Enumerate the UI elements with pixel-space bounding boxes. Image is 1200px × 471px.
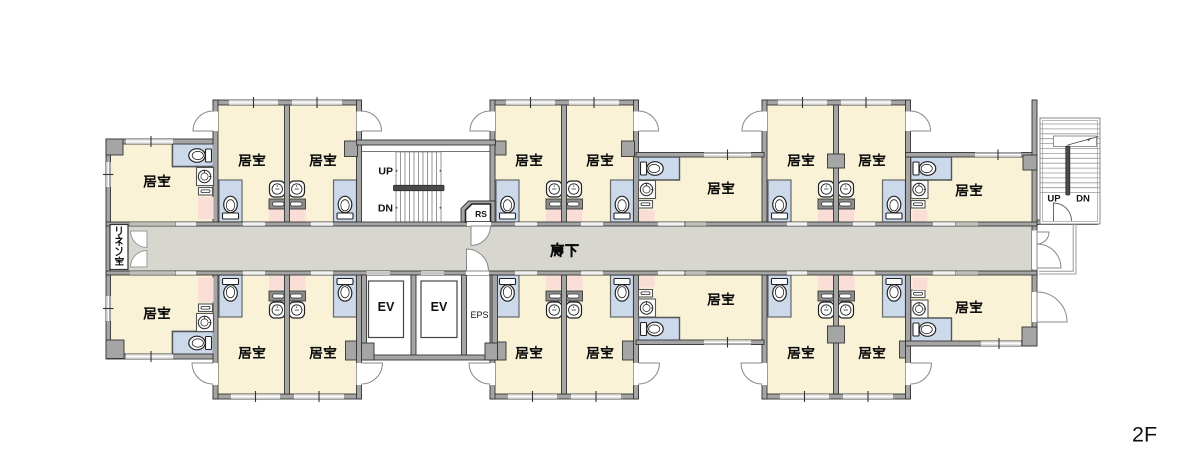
svg-text:EV: EV [431,300,448,314]
svg-text:DN: DN [1076,194,1090,205]
svg-text:EV: EV [378,300,395,314]
svg-text:UP: UP [378,166,393,178]
svg-text:EPS: EPS [470,310,488,320]
svg-text:2F: 2F [1132,423,1157,447]
svg-text:RS: RS [475,209,487,219]
svg-text:DN: DN [378,203,393,215]
